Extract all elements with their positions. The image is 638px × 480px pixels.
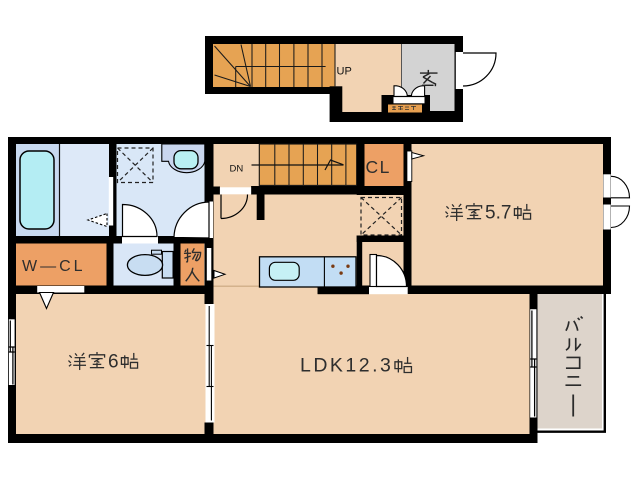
svg-text:W—CL: W—CL: [22, 258, 86, 275]
svg-text:LDK12.3: LDK12.3: [300, 355, 393, 377]
svg-text:DN: DN: [230, 163, 244, 174]
svg-text:6: 6: [108, 352, 119, 373]
svg-text:5.7: 5.7: [485, 203, 511, 224]
svg-text:UP: UP: [337, 66, 352, 78]
svg-text:CL: CL: [366, 157, 391, 177]
